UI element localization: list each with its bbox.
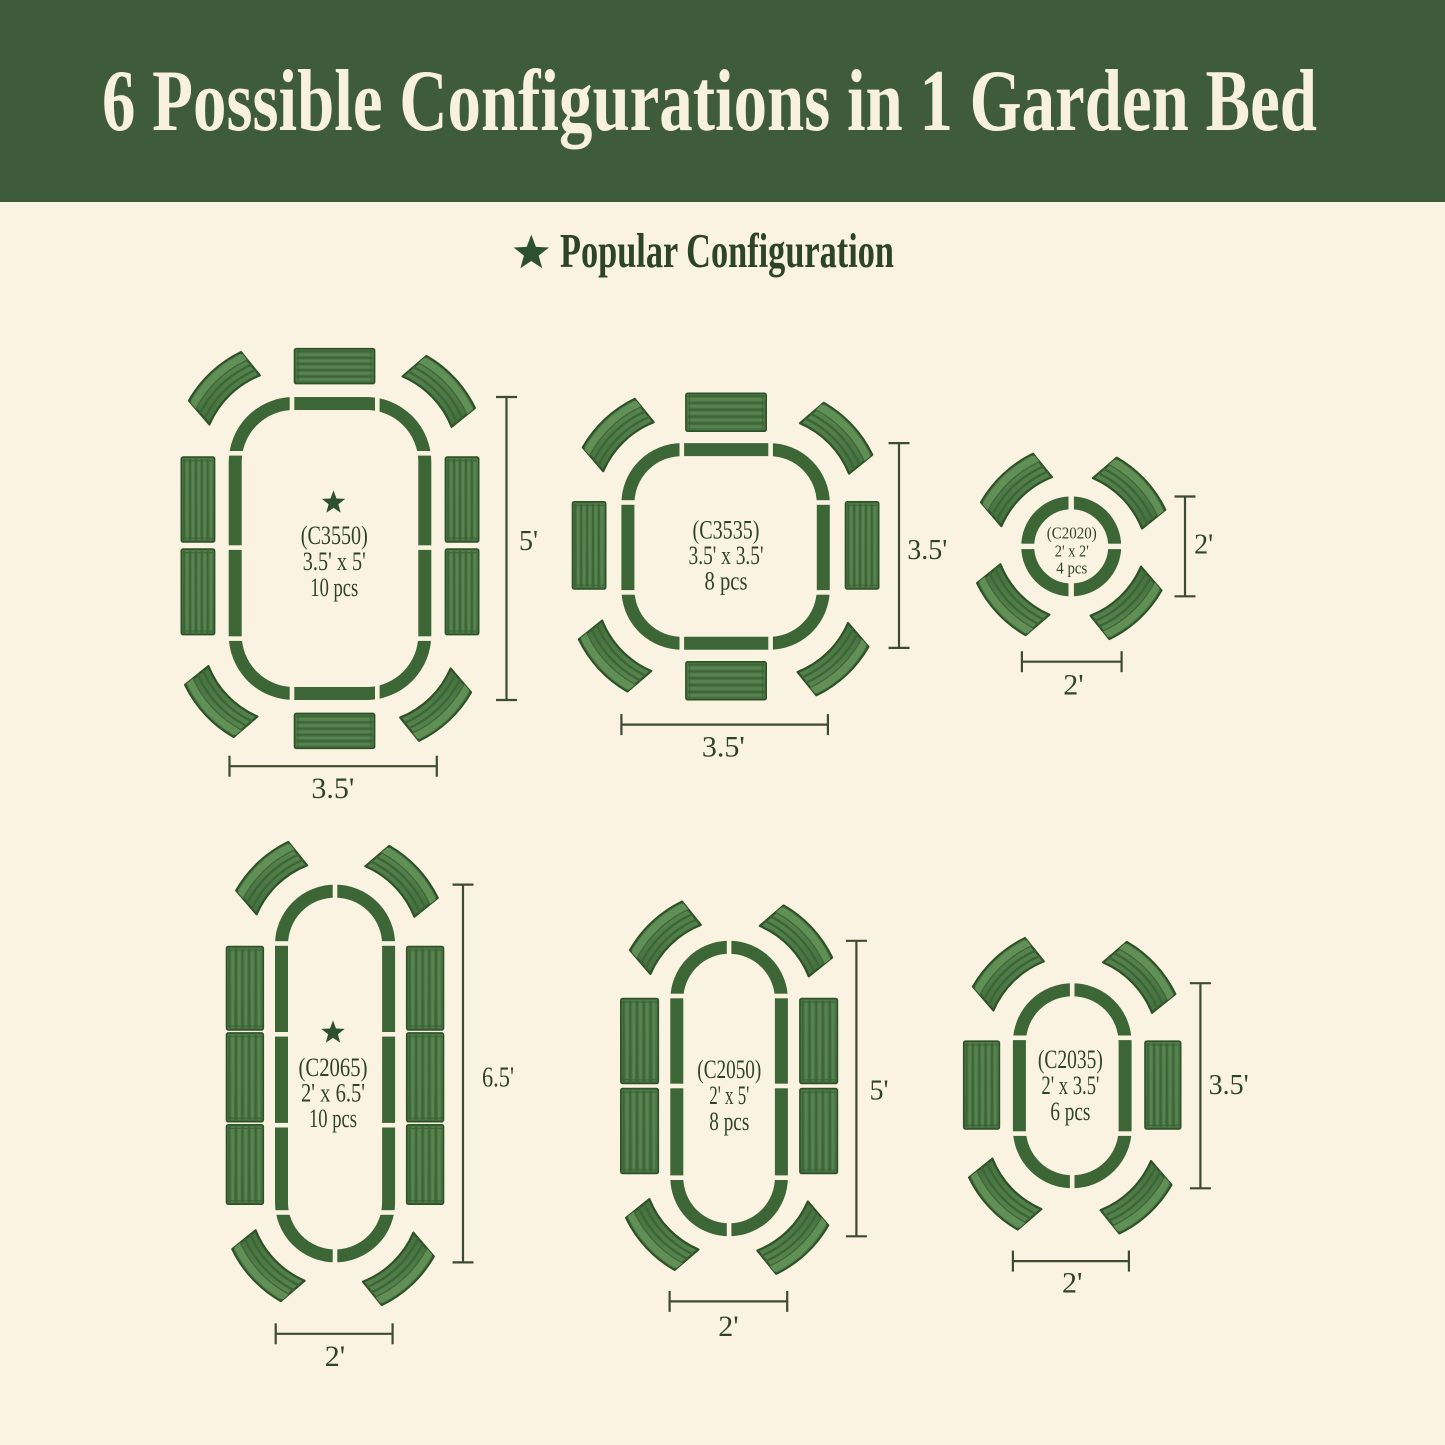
- svg-text:2' x 5': 2' x 5': [709, 1081, 749, 1110]
- svg-text:5': 5': [519, 526, 538, 557]
- svg-text:3.5': 3.5': [702, 731, 745, 764]
- svg-text:10 pcs: 10 pcs: [310, 573, 358, 602]
- svg-text:3.5': 3.5': [1209, 1070, 1249, 1101]
- svg-text:8 pcs: 8 pcs: [709, 1107, 749, 1136]
- svg-text:3.5': 3.5': [907, 535, 947, 566]
- svg-text:3.5' x 5': 3.5' x 5': [303, 547, 366, 576]
- svg-text:(C2035): (C2035): [1038, 1045, 1103, 1074]
- svg-text:5': 5': [869, 1076, 888, 1107]
- svg-text:(C2020): (C2020): [1047, 523, 1097, 542]
- svg-text:2': 2': [1063, 669, 1083, 702]
- svg-text:Popular Configuration: Popular Configuration: [560, 223, 894, 278]
- svg-text:2' x 3.5': 2' x 3.5': [1041, 1071, 1099, 1100]
- svg-text:6 pcs: 6 pcs: [1050, 1097, 1090, 1126]
- svg-text:2': 2': [1062, 1267, 1082, 1300]
- svg-text:2': 2': [325, 1340, 345, 1373]
- svg-text:4 pcs: 4 pcs: [1056, 558, 1087, 577]
- svg-text:3.5': 3.5': [311, 772, 354, 805]
- svg-text:6 Possible Configurations in 1: 6 Possible Configurations in 1 Garden Be…: [102, 53, 1317, 150]
- svg-text:(C2050): (C2050): [697, 1055, 761, 1084]
- svg-text:2': 2': [1194, 530, 1213, 561]
- svg-text:(C3550): (C3550): [301, 521, 368, 550]
- svg-text:8 pcs: 8 pcs: [705, 567, 748, 596]
- svg-text:10 pcs: 10 pcs: [309, 1104, 357, 1133]
- svg-text:2': 2': [718, 1310, 738, 1343]
- svg-text:6.5': 6.5': [482, 1063, 514, 1094]
